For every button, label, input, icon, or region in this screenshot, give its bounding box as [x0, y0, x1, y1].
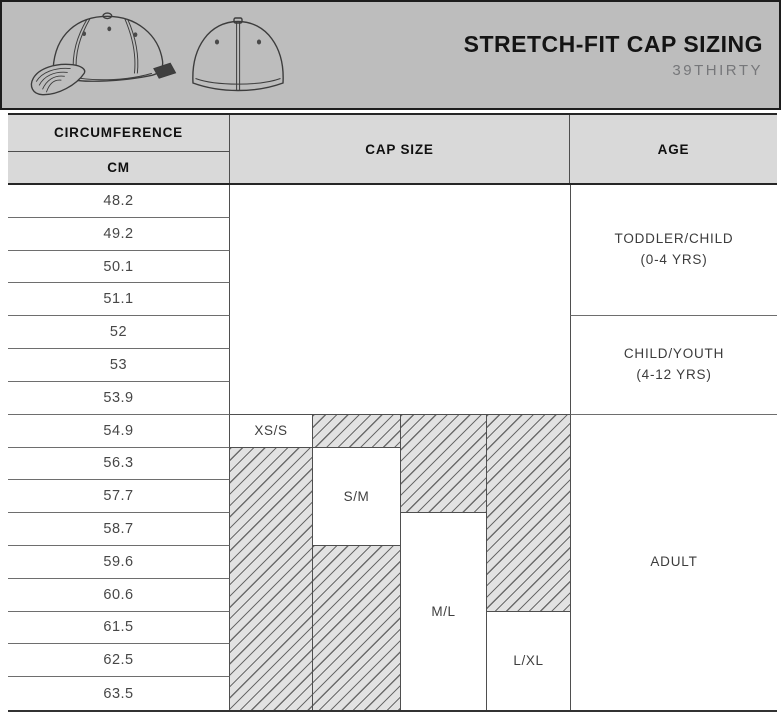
hatch-region-s-m-top	[312, 415, 400, 448]
hatch-region-xs-s	[230, 448, 312, 711]
size-cell-l-xl: L/XL	[486, 612, 570, 710]
header-age: AGE	[570, 115, 777, 183]
age-label: CHILD/YOUTH	[624, 344, 724, 365]
cm-value-cell: 57.7	[8, 480, 230, 513]
age-label: ADULT	[650, 552, 697, 573]
page-subtitle: 39THIRTY	[464, 62, 763, 79]
cap-illustrations	[28, 7, 288, 103]
cm-value-cell: 53.9	[8, 382, 230, 415]
cm-value-cell: 51.1	[8, 283, 230, 316]
size-cell-s-m: S/M	[312, 448, 400, 546]
size-table: CIRCUMFERENCE CM CAP SIZE AGE 48.2 49.2 …	[8, 113, 777, 712]
cm-value-cell: 60.6	[8, 579, 230, 612]
table-body: 48.2 49.2 50.1 51.1 52 53 53.9 54.9 56.3…	[8, 185, 777, 712]
cm-value-cell: 61.5	[8, 612, 230, 645]
cm-value-cell: 49.2	[8, 218, 230, 251]
size-cell-m-l: M/L	[400, 513, 486, 710]
age-range: (4-12 YRS)	[636, 365, 711, 386]
cm-value-cell: 59.6	[8, 546, 230, 579]
cm-value-cell: 52	[8, 316, 230, 349]
cap-side-view-icon	[28, 7, 178, 103]
cap-size-empty-region	[230, 185, 570, 415]
header-cap-size: CAP SIZE	[230, 115, 570, 183]
hatch-region-m-l-top	[400, 415, 486, 513]
header-circumference-group: CIRCUMFERENCE CM	[8, 115, 230, 183]
cm-value-cell: 50.1	[8, 251, 230, 284]
size-cell-xs-s: XS/S	[230, 415, 312, 448]
hatch-region-s-m-bottom	[312, 546, 400, 710]
age-range: (0-4 YRS)	[641, 250, 708, 271]
cm-value-cell: 54.9	[8, 415, 230, 448]
new-era-flag-logo-icon	[154, 63, 176, 78]
stretch-fit-sizing-chart: STRETCH-FIT CAP SIZING 39THIRTY CIRCUMFE…	[0, 0, 781, 712]
page-title: STRETCH-FIT CAP SIZING	[464, 31, 763, 58]
hatch-region-l-xl-top	[486, 415, 570, 612]
age-cell-child-youth: CHILD/YOUTH (4-12 YRS)	[570, 316, 777, 414]
cm-value-cell: 56.3	[8, 448, 230, 481]
cm-value-cell: 62.5	[8, 644, 230, 677]
header-cm-unit: CM	[8, 152, 229, 183]
banner: STRETCH-FIT CAP SIZING 39THIRTY	[0, 0, 781, 110]
banner-titles: STRETCH-FIT CAP SIZING 39THIRTY	[464, 31, 763, 79]
cm-value-cell: 53	[8, 349, 230, 382]
cm-value-cell: 48.2	[8, 185, 230, 218]
age-cell-toddler-child: TODDLER/CHILD (0-4 YRS)	[570, 185, 777, 316]
table-header: CIRCUMFERENCE CM CAP SIZE AGE	[8, 113, 777, 185]
cm-value-cell: 63.5	[8, 677, 230, 710]
age-cell-adult: ADULT	[570, 415, 777, 710]
cap-back-view-icon	[188, 17, 288, 93]
header-circumference: CIRCUMFERENCE	[8, 115, 229, 152]
cm-value-cell: 58.7	[8, 513, 230, 546]
age-label: TODDLER/CHILD	[615, 229, 734, 250]
